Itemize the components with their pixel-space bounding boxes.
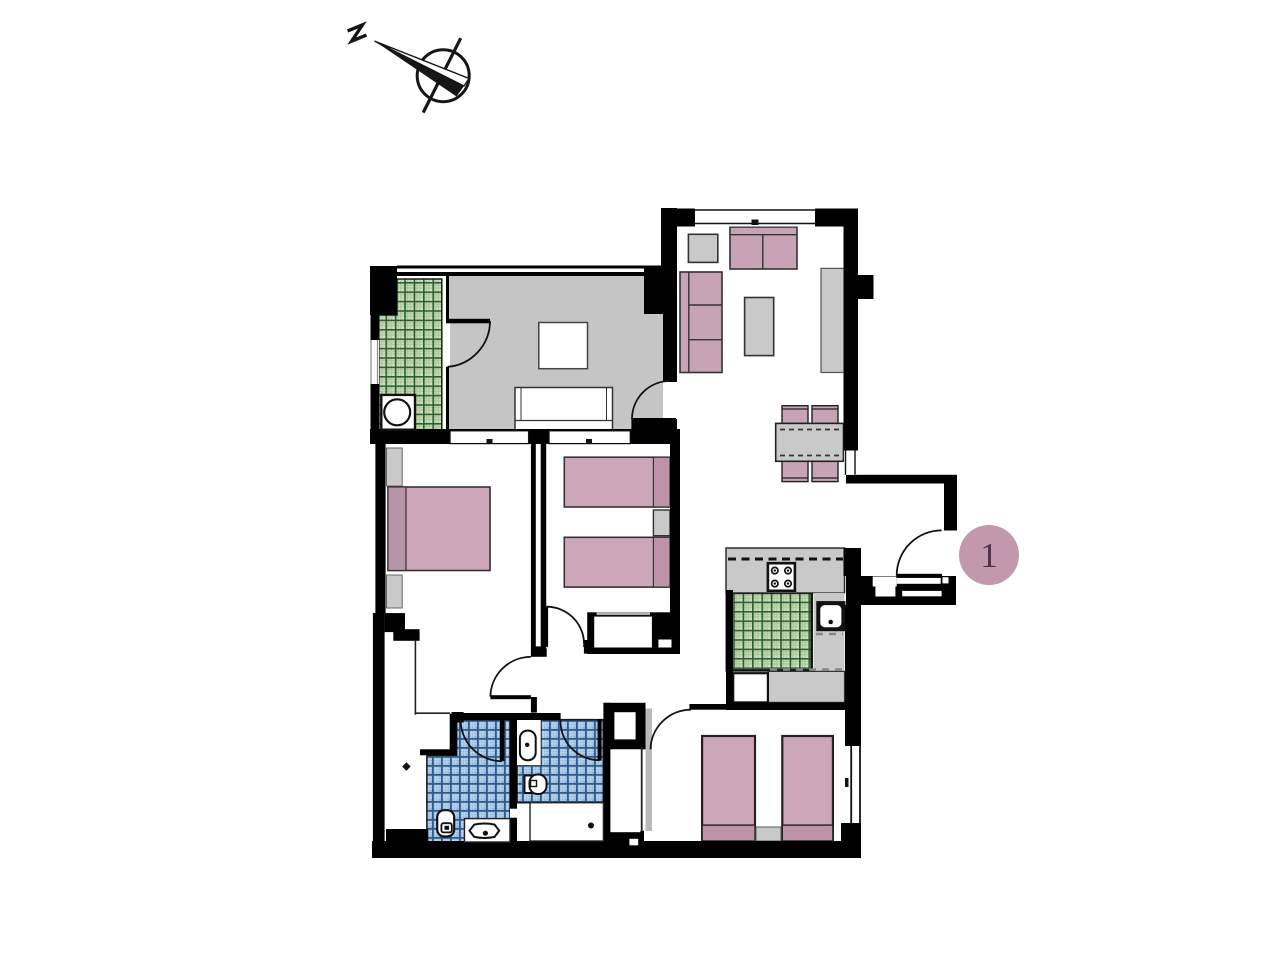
svg-text:1: 1	[980, 536, 998, 575]
